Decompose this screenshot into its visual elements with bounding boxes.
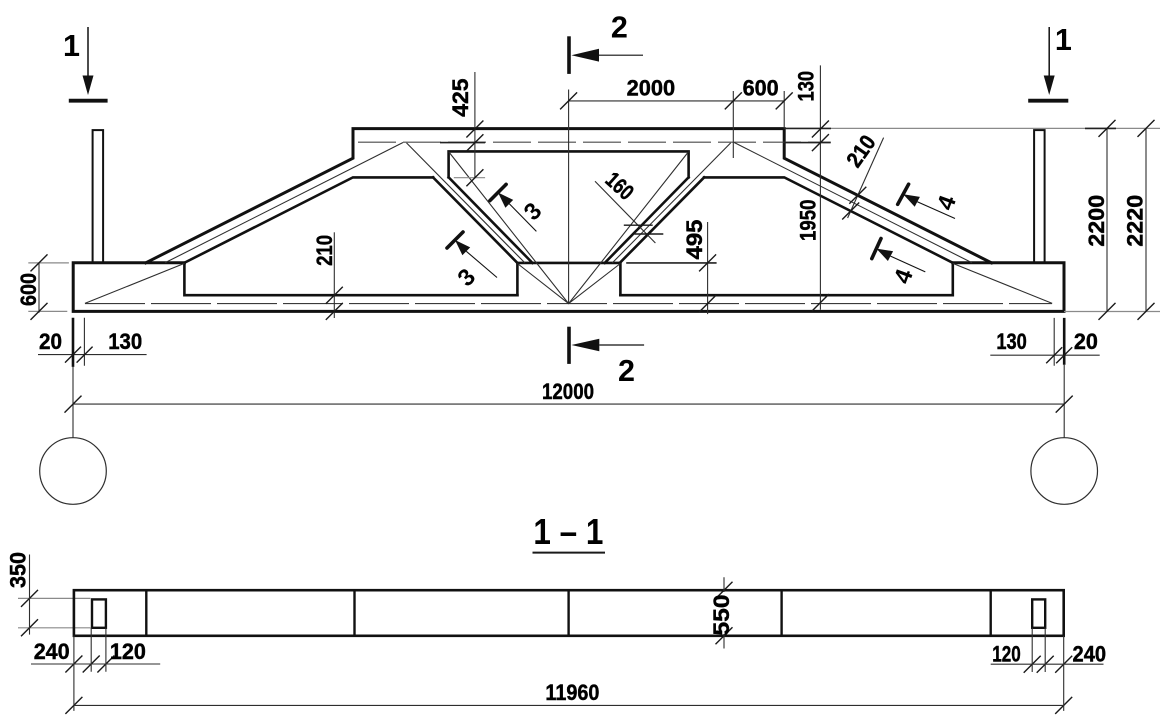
svg-text:3: 3 bbox=[453, 264, 482, 293]
svg-text:2: 2 bbox=[618, 354, 635, 388]
svg-text:1 – 1: 1 – 1 bbox=[533, 511, 603, 552]
svg-text:240: 240 bbox=[1073, 642, 1107, 667]
svg-text:20: 20 bbox=[1074, 329, 1098, 354]
svg-text:3: 3 bbox=[519, 198, 548, 227]
svg-text:12000: 12000 bbox=[542, 379, 594, 404]
svg-text:120: 120 bbox=[992, 642, 1021, 667]
svg-text:2220: 2220 bbox=[1123, 195, 1148, 247]
svg-text:1: 1 bbox=[63, 29, 80, 63]
svg-text:4: 4 bbox=[889, 265, 919, 287]
svg-text:130: 130 bbox=[108, 329, 142, 354]
svg-text:1: 1 bbox=[1055, 23, 1072, 57]
svg-text:210: 210 bbox=[312, 235, 337, 266]
svg-text:2200: 2200 bbox=[1084, 195, 1109, 247]
svg-text:550: 550 bbox=[709, 595, 734, 636]
svg-text:120: 120 bbox=[110, 639, 146, 664]
svg-text:160: 160 bbox=[601, 167, 639, 205]
svg-text:2000: 2000 bbox=[627, 76, 676, 101]
svg-text:210: 210 bbox=[841, 130, 880, 171]
svg-text:495: 495 bbox=[682, 220, 707, 260]
svg-text:11960: 11960 bbox=[545, 680, 599, 705]
svg-text:240: 240 bbox=[34, 639, 70, 664]
svg-text:2: 2 bbox=[611, 11, 628, 45]
svg-text:600: 600 bbox=[743, 76, 779, 101]
svg-text:350: 350 bbox=[6, 552, 31, 588]
svg-text:20: 20 bbox=[39, 329, 62, 354]
svg-text:425: 425 bbox=[448, 78, 473, 117]
svg-text:130: 130 bbox=[996, 329, 1027, 354]
svg-text:1950: 1950 bbox=[795, 199, 820, 241]
svg-text:130: 130 bbox=[793, 71, 818, 102]
svg-text:600: 600 bbox=[16, 273, 41, 306]
